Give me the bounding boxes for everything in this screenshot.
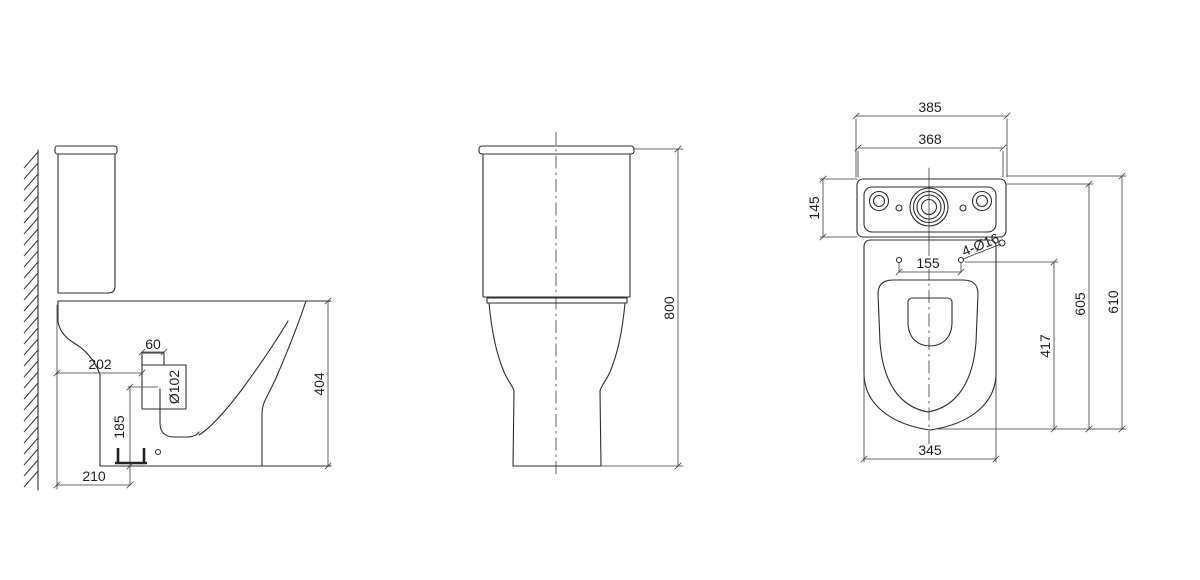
dim-rim-height: 404 xyxy=(311,372,327,396)
seat-fixing-hole-right xyxy=(959,258,964,263)
cistern-left-port xyxy=(870,192,889,211)
side-view: 60 202 Ø102 185 210 404 xyxy=(24,146,331,490)
dim-overall-depth: 610 xyxy=(1105,290,1121,314)
dim-fixing-holes-note: 4-Ø16 xyxy=(959,230,1001,259)
bowl-inner-curve xyxy=(199,321,288,435)
fixing-hole-side xyxy=(156,450,161,455)
dim-depth-to-cistern-face: 605 xyxy=(1072,292,1088,316)
dim-spigot-width: 60 xyxy=(145,336,161,352)
cistern-small-hole-right xyxy=(960,205,966,211)
technical-drawing: 60 202 Ø102 185 210 404 800 xyxy=(0,0,1200,580)
tank-lid-side xyxy=(55,146,117,154)
dim-overall-height: 800 xyxy=(661,296,677,320)
cistern-right-port xyxy=(973,192,992,211)
dim-cistern-overall-width: 385 xyxy=(918,99,942,115)
top-dimension-ticks xyxy=(820,113,1125,462)
dim-back-to-outlet: 202 xyxy=(88,356,112,372)
top-dimension-lines xyxy=(820,116,1126,462)
dim-cistern-depth: 145 xyxy=(806,196,822,220)
side-dimension-lines xyxy=(57,301,328,489)
dim-holes-to-front: 417 xyxy=(1037,334,1053,358)
bowl-front-profile xyxy=(262,301,306,466)
seat-fixing-hole-left xyxy=(897,258,902,263)
tank-body-front xyxy=(483,154,630,297)
tank-body-side xyxy=(58,154,115,293)
sump-outline xyxy=(908,298,952,346)
drawing-canvas: 60 202 Ø102 185 210 404 800 xyxy=(0,0,1200,580)
dim-back-to-trap: 210 xyxy=(82,468,106,484)
bowl-front-outline xyxy=(489,303,625,466)
pedestal-back-profile xyxy=(58,301,100,466)
tank-lid-front xyxy=(479,146,634,154)
trap-bracket xyxy=(115,448,147,463)
front-view: 800 xyxy=(479,132,683,478)
dim-cistern-body-width: 368 xyxy=(918,131,942,147)
seat-ledge xyxy=(487,298,627,303)
side-dimension-ticks xyxy=(54,298,331,488)
cistern-small-hole-left xyxy=(896,205,902,211)
top-view: 385 368 145 155 4-Ø16 417 605 610 345 xyxy=(806,99,1126,462)
dim-bowl-width: 345 xyxy=(918,442,942,458)
wall-hatching xyxy=(24,152,38,487)
dim-outlet-height: 185 xyxy=(111,415,127,439)
dim-fixing-hole-spacing: 155 xyxy=(916,255,940,271)
dim-outlet-diameter: Ø102 xyxy=(166,370,182,404)
